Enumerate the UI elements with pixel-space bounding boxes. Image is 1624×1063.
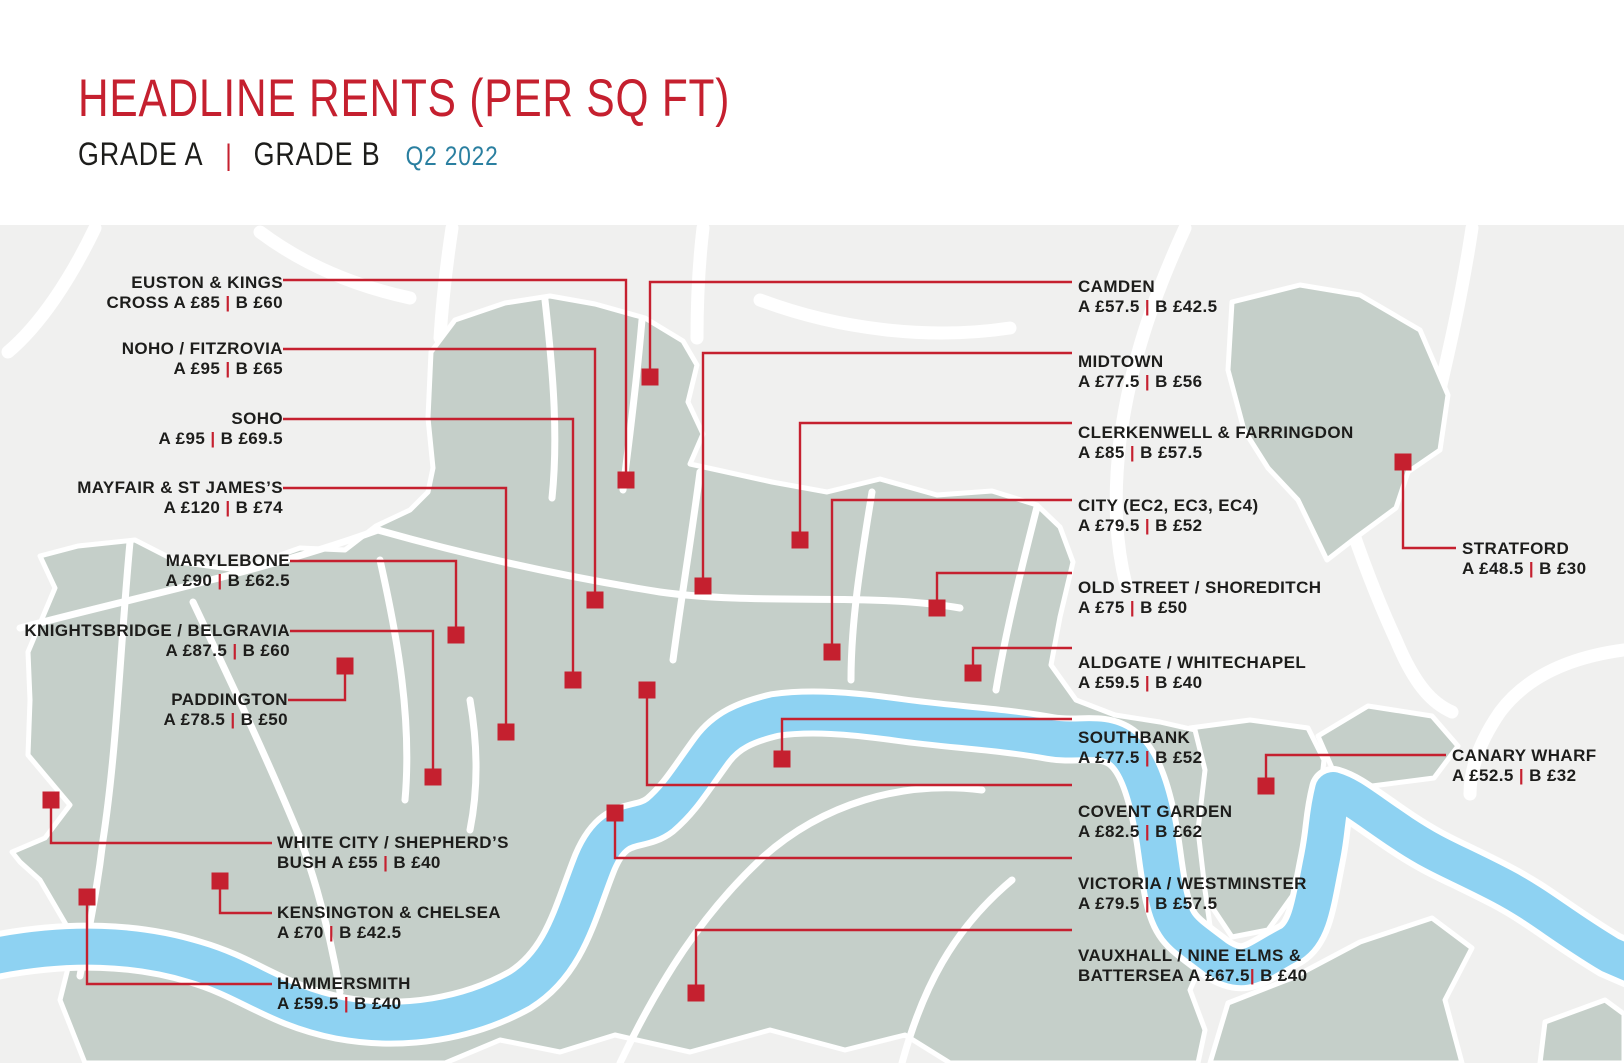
grade-a-label: GRADE A bbox=[78, 136, 203, 173]
period-label: Q2 2022 bbox=[406, 141, 499, 172]
grade-divider: | bbox=[225, 139, 232, 173]
subtitle: GRADE A | GRADE B Q2 2022 bbox=[78, 136, 763, 173]
grade-b-label: GRADE B bbox=[254, 136, 381, 173]
rent-map-infographic: HEADLINE RENTS (PER SQ FT) GRADE A | GRA… bbox=[0, 0, 1624, 1063]
header: HEADLINE RENTS (PER SQ FT) GRADE A | GRA… bbox=[78, 72, 893, 173]
london-map bbox=[0, 225, 1624, 1063]
page-title: HEADLINE RENTS (PER SQ FT) bbox=[78, 72, 730, 125]
